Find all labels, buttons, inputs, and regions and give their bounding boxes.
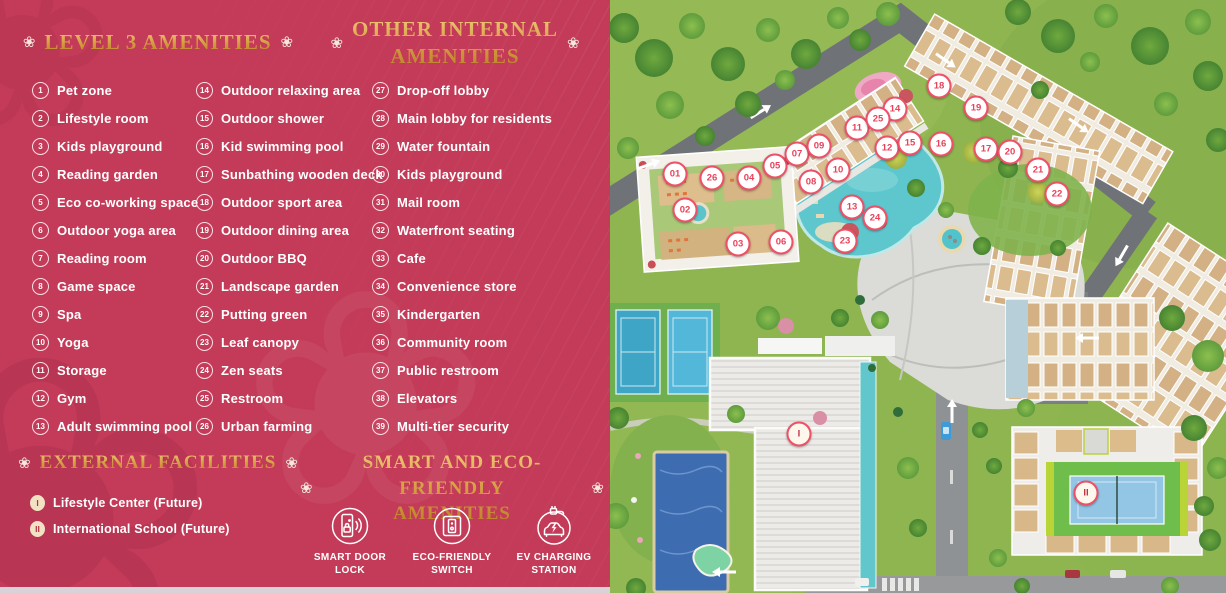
bottom-border-strip — [0, 587, 610, 593]
amenity-label: Yoga — [57, 335, 89, 350]
amenity-item: 34Convenience store — [372, 272, 552, 300]
level3-column-1: 1Pet zone2Lifestyle room3Kids playground… — [32, 76, 198, 440]
ev-charging-station-icon — [534, 506, 574, 546]
amenity-label: International School (Future) — [53, 522, 230, 536]
amenity-item: 4Reading garden — [32, 160, 198, 188]
map-marker-II: II — [1074, 481, 1099, 506]
white-van — [855, 578, 869, 586]
map-marker-08: 08 — [799, 170, 824, 195]
map-marker-26: 26 — [700, 166, 725, 191]
internal-title-line1: OTHER INTERNAL — [352, 17, 558, 41]
amenity-label: Kindergarten — [397, 307, 480, 322]
smart-door-lock-item: SMART DOORLOCK — [302, 506, 398, 577]
amenity-label: Adult swimming pool — [57, 419, 192, 434]
site-map: 0102030405060708091011121314151617181920… — [610, 0, 1226, 593]
amenity-item: 39Multi-tier security — [372, 412, 552, 440]
item-number-badge: 13 — [32, 418, 49, 435]
amenity-item: 29Water fountain — [372, 132, 552, 160]
amenity-label: Reading room — [57, 251, 147, 266]
item-number-badge: 39 — [372, 418, 389, 435]
amenity-item: 26Urban farming — [196, 412, 383, 440]
flower-icon: ❀ — [567, 36, 580, 51]
amenity-label: Community room — [397, 335, 507, 350]
level3-amenities-title: ❀ LEVEL 3 AMENITIES ❀ — [18, 30, 298, 55]
amenity-label: Waterfront seating — [397, 223, 515, 238]
site-map-render — [610, 0, 1226, 593]
item-number-badge: 21 — [196, 278, 213, 295]
map-marker-09: 09 — [807, 134, 832, 159]
mid-rise-block — [1006, 298, 1154, 400]
map-marker-13: 13 — [840, 195, 865, 220]
item-number-badge: 17 — [196, 166, 213, 183]
map-marker-17: 17 — [974, 137, 999, 162]
item-number-badge: 32 — [372, 222, 389, 239]
smart-amenities-row: SMART DOORLOCK ECO-FRIENDLYSWITCH — [302, 506, 602, 577]
amenity-item: 10Yoga — [32, 328, 198, 356]
amenity-label: Landscape garden — [221, 279, 339, 294]
amenity-label: Lifestyle Center (Future) — [53, 496, 202, 510]
other-internal-amenities-title: ❀ OTHER INTERNAL AMENITIES ❀ — [306, 16, 604, 71]
amenity-item: 15Outdoor shower — [196, 104, 383, 132]
amenity-label: Outdoor sport area — [221, 195, 342, 210]
item-number-badge: 30 — [372, 166, 389, 183]
item-number-badge: 15 — [196, 110, 213, 127]
item-number-badge: 18 — [196, 194, 213, 211]
smart-door-lock-icon — [330, 506, 370, 546]
amenity-item: 23Leaf canopy — [196, 328, 383, 356]
amenity-item: 19Outdoor dining area — [196, 216, 383, 244]
item-number-badge: 26 — [196, 418, 213, 435]
item-number-badge: 7 — [32, 250, 49, 267]
amenity-label: Public restroom — [397, 363, 499, 378]
eco-friendly-switch-item: ECO-FRIENDLYSWITCH — [404, 506, 500, 577]
level3-column-2: 14Outdoor relaxing area15Outdoor shower1… — [196, 76, 383, 440]
amenity-item: 17Sunbathing wooden deck — [196, 160, 383, 188]
amenity-label: Outdoor dining area — [221, 223, 349, 238]
map-marker-12: 12 — [875, 136, 900, 161]
amenity-label: Restroom — [221, 391, 283, 406]
amenity-item: 18Outdoor sport area — [196, 188, 383, 216]
item-number-badge: 11 — [32, 362, 49, 379]
amenity-label: Sunbathing wooden deck — [221, 167, 383, 182]
amenity-label: Urban farming — [221, 419, 312, 434]
map-marker-04: 04 — [737, 166, 762, 191]
amenity-item: 35Kindergarten — [372, 300, 552, 328]
smart-item-label: ECO-FRIENDLYSWITCH — [413, 551, 492, 577]
amenity-item: 12Gym — [32, 384, 198, 412]
item-number-badge: I — [30, 495, 45, 511]
amenity-item: 1Pet zone — [32, 76, 198, 104]
external-title-text: EXTERNAL FACILITIES — [40, 452, 277, 474]
map-marker-I: I — [787, 422, 812, 447]
smart-item-label: SMART DOORLOCK — [314, 551, 386, 577]
item-number-badge: 33 — [372, 250, 389, 267]
item-number-badge: 28 — [372, 110, 389, 127]
item-number-badge: 23 — [196, 334, 213, 351]
legend-panel: ❀ ❀ ❀ ❀ LEVEL 3 AMENITIES ❀ 1Pet zone2Li… — [0, 0, 610, 593]
item-number-badge: 2 — [32, 110, 49, 127]
amenity-item: 5Eco co-working space — [32, 188, 198, 216]
amenity-item: ILifestyle Center (Future) — [30, 490, 230, 516]
internal-title-line2: AMENITIES — [390, 44, 519, 68]
amenity-label: Main lobby for residents — [397, 111, 552, 126]
map-marker-24: 24 — [863, 206, 888, 231]
amenity-label: Pet zone — [57, 83, 112, 98]
map-marker-10: 10 — [826, 158, 851, 183]
amenity-item: 32Waterfront seating — [372, 216, 552, 244]
amenity-label: Kids playground — [397, 167, 503, 182]
amenity-label: Outdoor yoga area — [57, 223, 176, 238]
map-marker-23: 23 — [833, 229, 858, 254]
item-number-badge: 34 — [372, 278, 389, 295]
amenity-item: 14Outdoor relaxing area — [196, 76, 383, 104]
amenity-item: 22Putting green — [196, 300, 383, 328]
map-marker-22: 22 — [1045, 182, 1070, 207]
item-number-badge: 3 — [32, 138, 49, 155]
flower-icon: ❀ — [330, 36, 343, 51]
flower-icon: ❀ — [23, 35, 36, 50]
amenity-item: IIInternational School (Future) — [30, 516, 230, 542]
amenity-label: Outdoor shower — [221, 111, 324, 126]
amenity-item: 13Adult swimming pool — [32, 412, 198, 440]
school-building-rooftop-court — [1012, 427, 1202, 555]
amenity-item: 25Restroom — [196, 384, 383, 412]
map-marker-25: 25 — [866, 107, 891, 132]
amenity-item: 7Reading room — [32, 244, 198, 272]
red-car — [1065, 570, 1080, 578]
amenity-label: Kid swimming pool — [221, 139, 344, 154]
amenity-item: 36Community room — [372, 328, 552, 356]
internal-title-text: OTHER INTERNAL AMENITIES — [352, 16, 558, 71]
amenity-item: 8Game space — [32, 272, 198, 300]
item-number-badge: 27 — [372, 82, 389, 99]
item-number-badge: 14 — [196, 82, 213, 99]
map-marker-19: 19 — [964, 96, 989, 121]
flower-icon: ❀ — [285, 456, 298, 471]
flower-icon: ❀ — [591, 481, 604, 496]
amenity-item: 28Main lobby for residents — [372, 104, 552, 132]
amenity-label: Cafe — [397, 251, 426, 266]
flower-icon: ❀ — [281, 35, 294, 50]
item-number-badge: 36 — [372, 334, 389, 351]
map-marker-20: 20 — [998, 140, 1023, 165]
flower-icon: ❀ — [18, 456, 31, 471]
map-marker-18: 18 — [927, 74, 952, 99]
flower-icon: ❀ — [300, 481, 313, 496]
map-marker-05: 05 — [763, 154, 788, 179]
item-number-badge: 8 — [32, 278, 49, 295]
amenity-label: Spa — [57, 307, 81, 322]
item-number-badge: 20 — [196, 250, 213, 267]
amenity-label: Reading garden — [57, 167, 158, 182]
white-car — [1110, 570, 1126, 578]
item-number-badge: 22 — [196, 306, 213, 323]
external-facilities-title: ❀ EXTERNAL FACILITIES ❀ — [14, 452, 302, 474]
item-number-badge: 35 — [372, 306, 389, 323]
item-number-badge: 19 — [196, 222, 213, 239]
item-number-badge: 12 — [32, 390, 49, 407]
amenity-item: 27Drop-off lobby — [372, 76, 552, 104]
amenity-item: 6Outdoor yoga area — [32, 216, 198, 244]
amenity-label: Elevators — [397, 391, 457, 406]
amenity-label: Outdoor relaxing area — [221, 83, 360, 98]
amenity-label: Drop-off lobby — [397, 83, 489, 98]
amenity-item: 33Cafe — [372, 244, 552, 272]
amenity-item: 16Kid swimming pool — [196, 132, 383, 160]
item-number-badge: 31 — [372, 194, 389, 211]
internal-amenities-list: 27Drop-off lobby28Main lobby for residen… — [372, 76, 552, 440]
map-marker-16: 16 — [929, 132, 954, 157]
amenity-label: Lifestyle room — [57, 111, 149, 126]
amenity-item: 21Landscape garden — [196, 272, 383, 300]
amenity-label: Storage — [57, 363, 107, 378]
item-number-badge: 5 — [32, 194, 49, 211]
amenities-infographic: ❀ ❀ ❀ ❀ LEVEL 3 AMENITIES ❀ 1Pet zone2Li… — [0, 0, 1226, 593]
amenity-label: Outdoor BBQ — [221, 251, 307, 266]
item-number-badge: 38 — [372, 390, 389, 407]
amenity-label: Putting green — [221, 307, 307, 322]
blue-car — [941, 422, 951, 440]
map-marker-06: 06 — [769, 230, 794, 255]
item-number-badge: 29 — [372, 138, 389, 155]
amenity-item: 24Zen seats — [196, 356, 383, 384]
amenity-label: Kids playground — [57, 139, 163, 154]
amenity-label: Convenience store — [397, 279, 517, 294]
level3-title-text: LEVEL 3 AMENITIES — [44, 30, 271, 55]
external-facilities-list: ILifestyle Center (Future)IIInternationa… — [30, 490, 230, 542]
amenity-item: 9Spa — [32, 300, 198, 328]
smart-item-label: EV CHARGINGSTATION — [517, 551, 592, 577]
amenity-label: Eco co-working space — [57, 195, 198, 210]
item-number-badge: 9 — [32, 306, 49, 323]
amenity-item: 30Kids playground — [372, 160, 552, 188]
item-number-badge: 1 — [32, 82, 49, 99]
amenity-label: Mail room — [397, 195, 460, 210]
item-number-badge: 10 — [32, 334, 49, 351]
item-number-badge: 24 — [196, 362, 213, 379]
amenity-item: 11Storage — [32, 356, 198, 384]
amenity-label: Water fountain — [397, 139, 490, 154]
amenity-label: Gym — [57, 391, 87, 406]
water-fountain — [942, 229, 962, 249]
amenity-item: 3Kids playground — [32, 132, 198, 160]
item-number-badge: 4 — [32, 166, 49, 183]
amenity-item: 2Lifestyle room — [32, 104, 198, 132]
tennis-courts — [610, 303, 720, 402]
amenity-label: Game space — [57, 279, 136, 294]
amenity-label: Zen seats — [221, 363, 283, 378]
amenity-item: 38Elevators — [372, 384, 552, 412]
map-marker-02: 02 — [673, 198, 698, 223]
item-number-badge: II — [30, 521, 45, 537]
eco-friendly-switch-icon — [432, 506, 472, 546]
ev-charging-station-item: EV CHARGINGSTATION — [506, 506, 602, 577]
amenity-item: 31Mail room — [372, 188, 552, 216]
map-marker-21: 21 — [1026, 158, 1051, 183]
amenity-label: Leaf canopy — [221, 335, 299, 350]
amenity-item: 20Outdoor BBQ — [196, 244, 383, 272]
smart-title-line1: SMART AND ECO-FRIENDLY — [363, 452, 542, 499]
item-number-badge: 25 — [196, 390, 213, 407]
item-number-badge: 16 — [196, 138, 213, 155]
map-marker-03: 03 — [726, 232, 751, 257]
map-marker-01: 01 — [663, 162, 688, 187]
amenity-label: Multi-tier security — [397, 419, 509, 434]
item-number-badge: 6 — [32, 222, 49, 239]
amenity-item: 37Public restroom — [372, 356, 552, 384]
map-marker-15: 15 — [898, 131, 923, 156]
item-number-badge: 37 — [372, 362, 389, 379]
water-feature-strip — [860, 362, 876, 588]
